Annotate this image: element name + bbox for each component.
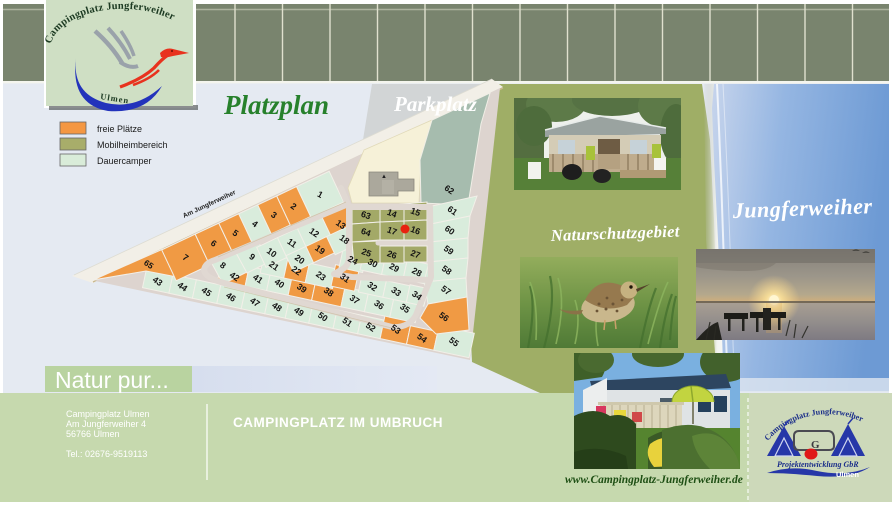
svg-text:Projektentwicklung GbR: Projektentwicklung GbR [777, 460, 859, 469]
svg-text:freie Plätze: freie Plätze [97, 124, 142, 134]
svg-text:Parkplatz: Parkplatz [393, 92, 478, 116]
svg-text:Mobilheimbereich: Mobilheimbereich [97, 140, 168, 150]
svg-text:CAMPINGPLATZ IM UMBRUCH: CAMPINGPLATZ IM UMBRUCH [233, 415, 443, 430]
svg-text:56766 Ulmen: 56766 Ulmen [66, 429, 120, 439]
svg-text:Platzplan: Platzplan [223, 90, 329, 120]
svg-text:Dauercamper: Dauercamper [97, 156, 152, 166]
svg-text:Am Jungferweiher 4: Am Jungferweiher 4 [66, 419, 146, 429]
svg-text:Campingplatz Ulmen: Campingplatz Ulmen [66, 409, 150, 419]
svg-text:Jungferweiher: Jungferweiher [731, 193, 873, 223]
svg-text:Ulmen: Ulmen [836, 470, 859, 479]
svg-text:Tel.: 02676-9519113: Tel.: 02676-9519113 [66, 449, 147, 459]
svg-text:Natur pur...: Natur pur... [55, 367, 169, 393]
svg-text:www.Campingplatz-Jungferweiher: www.Campingplatz-Jungferweiher.de [565, 474, 743, 486]
svg-text:▲: ▲ [381, 174, 387, 180]
